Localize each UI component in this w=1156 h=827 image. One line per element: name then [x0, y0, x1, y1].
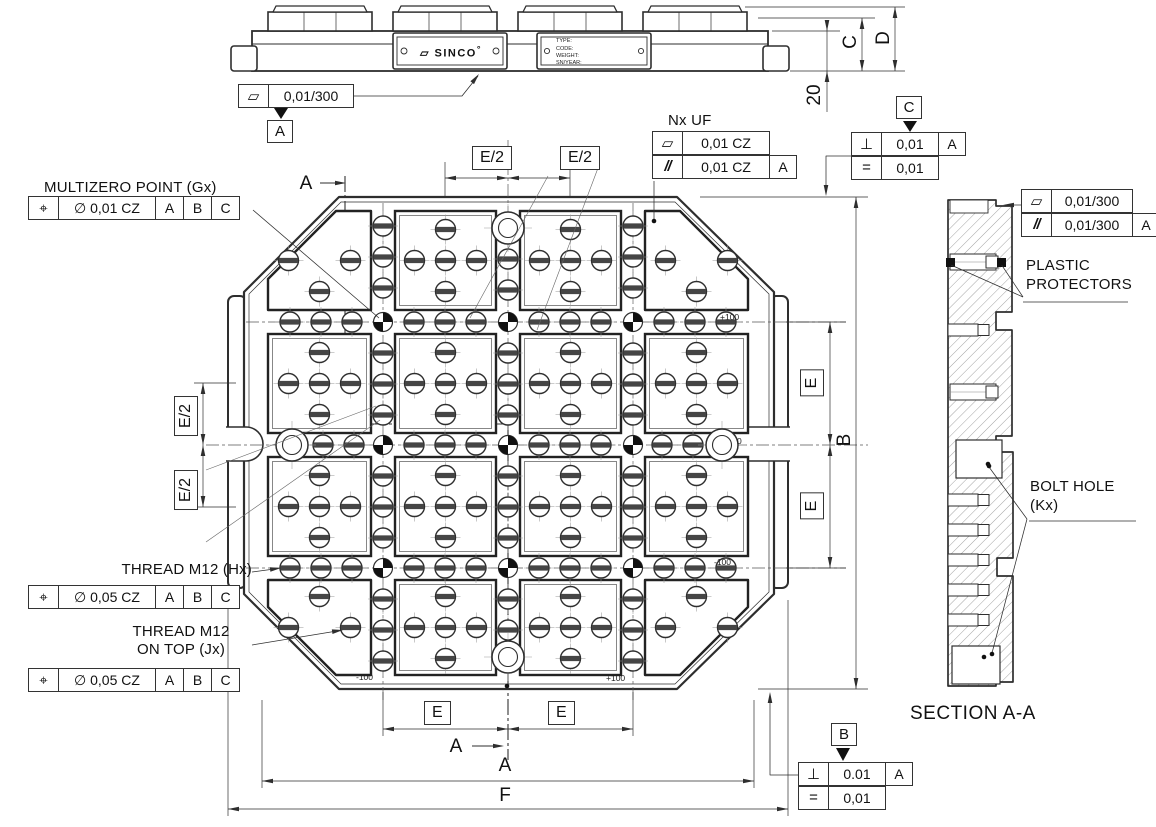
- datum-ref-a: A: [156, 196, 184, 220]
- dim-arrow: [743, 779, 754, 784]
- tolerance-value: 0,01 CZ: [683, 155, 770, 179]
- nameplate-snyear: SN/YEAR:: [556, 60, 582, 67]
- brand-logo: ▱ SINCO°: [399, 44, 503, 60]
- hole-slot: [561, 227, 580, 232]
- symmetry-symbol: =: [798, 786, 829, 810]
- hole-slot: [436, 565, 455, 570]
- hole-slot: [530, 381, 549, 386]
- hole-slot: [687, 381, 706, 386]
- hole-slot: [436, 227, 455, 232]
- hole-slot: [687, 350, 706, 355]
- datum-a-flag: A: [267, 120, 293, 143]
- datum-ref-a: A: [156, 585, 184, 609]
- fcf-thread-hx: ⌖ ∅ 0,05 CZ A B C: [28, 585, 240, 609]
- hole-slot: [561, 319, 580, 324]
- hole-slot: [624, 658, 643, 663]
- hole-slot: [279, 625, 298, 630]
- hole-slot: [310, 535, 329, 540]
- hole-slot: [499, 381, 518, 386]
- section-mark-a-bottom: A: [450, 736, 463, 758]
- hole-slot: [436, 473, 455, 478]
- hole-slot: [624, 535, 643, 540]
- dim-arrow: [201, 434, 206, 445]
- dim-arrow: [893, 7, 898, 18]
- leader-arrow: [768, 692, 773, 703]
- dim-arrow: [825, 20, 830, 31]
- tolerance-value: 0,01/300: [1052, 213, 1133, 237]
- dim-arrow: [854, 678, 859, 689]
- reference-bush-bore: [713, 436, 732, 455]
- dim-arrow: [825, 71, 830, 82]
- dim-arrow: [228, 807, 239, 812]
- hole-slot: [405, 319, 424, 324]
- datum-ref-c: C: [212, 668, 240, 692]
- dim-arrow: [201, 496, 206, 507]
- leader-datum-c: [826, 156, 852, 193]
- hole-slot: [436, 504, 455, 509]
- hole-slot: [341, 504, 360, 509]
- circle: [982, 655, 987, 660]
- hole-slot: [624, 596, 643, 601]
- hole-slot: [374, 350, 393, 355]
- nx-uf-label: Nx UF: [668, 112, 712, 129]
- notch-left: [226, 427, 263, 461]
- hole-slot: [467, 319, 486, 324]
- hole-slot: [310, 350, 329, 355]
- hole-slot: [499, 412, 518, 417]
- hole-slot: [343, 565, 362, 570]
- hole-slot: [655, 565, 674, 570]
- dim-arrow: [828, 434, 833, 445]
- hole-slot: [499, 473, 518, 478]
- hole-slot: [405, 565, 424, 570]
- section-mark-a-top: A: [300, 173, 313, 195]
- section-bush-block: [952, 646, 1000, 684]
- hole-slot: [687, 289, 706, 294]
- dim-e-bottom-left: E: [424, 701, 451, 725]
- hole-slot: [436, 412, 455, 417]
- elevation-pad-top-strip: [648, 6, 742, 12]
- datum-ref-c: C: [212, 196, 240, 220]
- hole-slot: [624, 254, 643, 259]
- dim-arrow: [893, 60, 898, 71]
- hole-slot: [310, 473, 329, 478]
- perpendicularity-symbol: ⊥: [798, 762, 829, 786]
- hole-slot: [530, 258, 549, 263]
- hole-slot: [436, 594, 455, 599]
- hole-slot: [436, 258, 455, 263]
- leader-arrow: [824, 185, 829, 196]
- circle: [987, 464, 992, 469]
- hole-slot: [279, 504, 298, 509]
- tolerance-value: 0,01/300: [1052, 189, 1133, 213]
- nameplate-code: CODE:: [556, 46, 573, 53]
- thread-m12-jx-label-line1: THREAD M12: [110, 623, 252, 640]
- dim-arrow: [201, 445, 206, 456]
- hole-slot: [592, 504, 611, 509]
- hole-slot: [436, 656, 455, 661]
- hole-slot: [592, 625, 611, 630]
- fcf-thread-jx: ⌖ ∅ 0,05 CZ A B C: [28, 668, 240, 692]
- hole-slot: [624, 285, 643, 290]
- fcf-elevation-flatness: ▱ 0,01/300: [238, 84, 354, 108]
- hole-slot: [561, 350, 580, 355]
- hole-slot: [374, 504, 393, 509]
- elevation-body: [252, 31, 768, 71]
- hole-slot: [656, 504, 675, 509]
- hole-slot: [374, 473, 393, 478]
- circle: [652, 219, 657, 224]
- fcf-nxuf-parallelism: // 0,01 CZ A: [652, 155, 797, 179]
- hole-slot: [653, 442, 672, 447]
- hole-slot: [405, 504, 424, 509]
- fcf-c-perpendicularity: ⊥ 0,01 A: [851, 132, 966, 156]
- hole-slot: [374, 412, 393, 417]
- dim-arrow: [508, 727, 519, 732]
- hole-slot: [530, 319, 549, 324]
- hole-slot: [374, 535, 393, 540]
- hole-slot: [314, 442, 333, 447]
- hole-slot: [374, 254, 393, 259]
- hole-slot: [499, 504, 518, 509]
- hole-slot: [624, 412, 643, 417]
- dim-b: B: [834, 434, 856, 447]
- hole-slot: [436, 381, 455, 386]
- tolerance-value: ∅ 0,01 CZ: [59, 196, 156, 220]
- bolt-hole: [948, 524, 978, 536]
- bolt-head: [978, 615, 989, 626]
- hole-slot: [686, 565, 705, 570]
- hole-slot: [499, 535, 518, 540]
- bolt-head: [986, 256, 998, 268]
- logo-text: SINCO: [435, 48, 477, 60]
- hole-slot: [561, 412, 580, 417]
- datum-ref-a: A: [770, 155, 797, 179]
- hole-slot: [310, 504, 329, 509]
- fcf-b-perpendicularity: ⊥ 0.01 A: [798, 762, 913, 786]
- datum-c-triangle: [903, 121, 917, 132]
- dim-arrow: [508, 176, 519, 181]
- dim-f: F: [499, 785, 511, 807]
- dim-c: C: [840, 35, 862, 49]
- datum-ref-b: B: [184, 668, 212, 692]
- section-bush-block: [956, 440, 1002, 478]
- hole-slot: [374, 658, 393, 663]
- hole-slot: [499, 627, 518, 632]
- hole-slot: [687, 594, 706, 599]
- elevation-pad: [268, 12, 372, 31]
- hole-slot: [467, 625, 486, 630]
- tolerance-value: ∅ 0,05 CZ: [59, 585, 156, 609]
- hole-slot: [624, 504, 643, 509]
- elevation-pad: [393, 12, 497, 31]
- hole-slot: [310, 412, 329, 417]
- dim-e2-left-upper: E/2: [174, 396, 198, 436]
- hole-slot: [467, 381, 486, 386]
- leader-arrow: [470, 74, 479, 84]
- hole-slot: [499, 350, 518, 355]
- tolerance-value: 0.01: [829, 762, 886, 786]
- bolt-head: [978, 555, 989, 566]
- hole-slot: [592, 442, 611, 447]
- hole-slot: [530, 565, 549, 570]
- section-arrow: [493, 744, 504, 749]
- position-symbol: ⌖: [28, 196, 59, 220]
- hole-slot: [499, 596, 518, 601]
- position-symbol: ⌖: [28, 668, 59, 692]
- perpendicularity-symbol: ⊥: [851, 132, 882, 156]
- dim-arrow: [828, 322, 833, 333]
- dim-arrow: [262, 779, 273, 784]
- dim-arrow: [828, 557, 833, 568]
- hole-slot: [405, 258, 424, 263]
- dim-e2-top-right: E/2: [560, 146, 600, 170]
- hole-slot: [656, 625, 675, 630]
- bolt-hole: [948, 614, 978, 626]
- elevation-pad-top-strip: [398, 6, 492, 12]
- hole-slot: [436, 535, 455, 540]
- circle: [948, 261, 953, 266]
- hole-slot: [310, 381, 329, 386]
- thread-m12-hx-label: THREAD M12 (Hx): [70, 561, 252, 578]
- hole-slot: [624, 473, 643, 478]
- flatness-symbol: ▱: [1021, 189, 1052, 213]
- datum-ref-a: A: [886, 762, 913, 786]
- hole-slot: [436, 350, 455, 355]
- hole-slot: [624, 223, 643, 228]
- name-plate-screw: [638, 48, 643, 53]
- circle: [505, 684, 510, 689]
- hole-slot: [530, 504, 549, 509]
- hole-slot: [405, 625, 424, 630]
- dim-arrow: [497, 727, 508, 732]
- hole-slot: [310, 594, 329, 599]
- hole-slot: [624, 350, 643, 355]
- datum-ref-b: B: [184, 585, 212, 609]
- tolerance-value: 0,01: [882, 156, 939, 180]
- hole-slot: [687, 412, 706, 417]
- symmetry-symbol: =: [851, 156, 882, 180]
- hole-slot: [530, 625, 549, 630]
- hole-slot: [374, 223, 393, 228]
- nameplate-type: TYPE:: [556, 38, 572, 45]
- hole-slot: [310, 289, 329, 294]
- hole-slot: [592, 381, 611, 386]
- bolt-head: [986, 386, 998, 398]
- hole-slot: [436, 289, 455, 294]
- hole-slot: [561, 381, 580, 386]
- tolerance-value: 0,01: [882, 132, 939, 156]
- datum-ref-a: A: [1133, 213, 1156, 237]
- dim-arrow: [497, 176, 508, 181]
- hole-slot: [718, 504, 737, 509]
- hole-slot: [374, 381, 393, 386]
- hole-slot: [561, 473, 580, 478]
- flatness-symbol: ▱: [652, 131, 683, 155]
- elevation-pad: [643, 12, 747, 31]
- hole-slot: [624, 381, 643, 386]
- elevation-protector-cap-right: [763, 46, 789, 71]
- datum-b-triangle: [836, 748, 850, 761]
- reference-bush-bore: [499, 648, 518, 667]
- hole-slot: [592, 565, 611, 570]
- hole-slot: [687, 535, 706, 540]
- datum-b-flag: B: [831, 723, 857, 746]
- multizero-point-label: MULTIZERO POINT (Gx): [44, 179, 217, 196]
- logo-parallelogram-icon: ▱: [420, 48, 430, 60]
- hole-slot: [281, 565, 300, 570]
- hole-slot: [687, 504, 706, 509]
- tolerance-value: 0,01: [829, 786, 886, 810]
- hole-slot: [467, 504, 486, 509]
- hole-slot: [561, 656, 580, 661]
- logo-registered-mark: °: [477, 44, 482, 54]
- fcf-b-symmetry: = 0,01: [798, 786, 886, 810]
- dim-e2-left-lower: E/2: [174, 470, 198, 510]
- coord-zero-right: 0: [737, 436, 742, 446]
- hole-slot: [561, 504, 580, 509]
- hole-slot: [561, 625, 580, 630]
- parallelism-symbol: //: [1021, 213, 1052, 237]
- dim-d: D: [873, 31, 895, 45]
- elevation-protector-cap-left: [231, 46, 257, 71]
- flatness-symbol: ▱: [238, 84, 269, 108]
- coord-plus100-right: +100: [720, 312, 739, 322]
- fcf-multizero: ⌖ ∅ 0,01 CZ A B C: [28, 196, 240, 220]
- dim-20: 20: [804, 84, 826, 105]
- fcf-c-symmetry: = 0,01: [851, 156, 939, 180]
- coord-minus100-right: -100: [714, 557, 731, 567]
- dim-arrow: [854, 197, 859, 208]
- section-arrow: [335, 181, 346, 186]
- parallelism-symbol: //: [652, 155, 683, 179]
- dim-arrow: [828, 445, 833, 456]
- technical-drawing-page: MULTIZERO POINT (Gx) ⌖ ∅ 0,01 CZ A B C T…: [0, 0, 1156, 827]
- bolt-hole: [948, 494, 978, 506]
- bolt-hole-label-line2: (Kx): [1030, 497, 1058, 514]
- dim-e-right-upper: E: [800, 370, 824, 397]
- dim-e2-top-left: E/2: [472, 146, 512, 170]
- hole-slot: [341, 625, 360, 630]
- fcf-section-parallelism: // 0,01/300 A: [1021, 213, 1156, 237]
- dim-arrow: [445, 176, 456, 181]
- hole-slot: [312, 319, 331, 324]
- tolerance-value: 0,01 CZ: [683, 131, 770, 155]
- hole-slot: [592, 258, 611, 263]
- fcf-nxuf-flatness: ▱ 0,01 CZ: [652, 131, 770, 155]
- fcf-section-flatness: ▱ 0,01/300: [1021, 189, 1133, 213]
- section-top-detail: [950, 200, 988, 213]
- datum-ref-a: A: [939, 132, 966, 156]
- leader-datum-b: [770, 695, 798, 775]
- dim-arrow: [201, 383, 206, 394]
- coord-plus100-bottom: +100: [606, 673, 625, 683]
- hole-slot: [312, 565, 331, 570]
- hole-slot: [561, 594, 580, 599]
- hole-slot: [655, 319, 674, 324]
- dim-arrow: [559, 176, 570, 181]
- coord-minus100-bottom: -100: [356, 672, 373, 682]
- dim-arrow: [383, 727, 394, 732]
- hole-slot: [561, 442, 580, 447]
- hole-slot: [341, 381, 360, 386]
- bolt-hole-label-line1: BOLT HOLE: [1030, 478, 1115, 495]
- hole-slot: [436, 442, 455, 447]
- elevation-pad: [518, 12, 622, 31]
- bolt-hole: [948, 554, 978, 566]
- hole-slot: [436, 625, 455, 630]
- hole-slot: [686, 319, 705, 324]
- hole-slot: [374, 285, 393, 290]
- hole-slot: [374, 627, 393, 632]
- hole-slot: [279, 381, 298, 386]
- datum-ref-b: B: [184, 196, 212, 220]
- hole-slot: [436, 319, 455, 324]
- elevation-pad-top-strip: [273, 6, 367, 12]
- tolerance-value: ∅ 0,05 CZ: [59, 668, 156, 692]
- hole-slot: [624, 627, 643, 632]
- hole-slot: [561, 289, 580, 294]
- circle: [990, 652, 995, 657]
- datum-ref-c: C: [212, 585, 240, 609]
- hole-slot: [499, 287, 518, 292]
- bolt-head: [978, 525, 989, 536]
- name-plate-screw: [544, 48, 549, 53]
- circle: [999, 261, 1004, 266]
- hole-slot: [561, 565, 580, 570]
- hole-slot: [592, 319, 611, 324]
- hole-slot: [718, 381, 737, 386]
- plastic-protectors-label-line1: PLASTIC: [1026, 257, 1090, 274]
- bolt-head: [978, 495, 989, 506]
- dim-arrow: [860, 60, 865, 71]
- bolt-hole: [948, 584, 978, 596]
- hole-slot: [467, 258, 486, 263]
- dim-e-right-lower: E: [800, 493, 824, 520]
- hole-slot: [656, 258, 675, 263]
- hole-slot: [656, 381, 675, 386]
- dim-a: A: [499, 755, 512, 777]
- nameplate-weight: WEIGHT:: [556, 53, 579, 60]
- hole-slot: [405, 442, 424, 447]
- dim-e-bottom-right: E: [548, 701, 575, 725]
- dim-arrow: [622, 727, 633, 732]
- dim-arrow: [860, 18, 865, 29]
- reference-bush-bore: [283, 436, 302, 455]
- datum-c-flag: C: [896, 96, 922, 119]
- hole-slot: [687, 473, 706, 478]
- datum-ref-a: A: [156, 668, 184, 692]
- section-title: SECTION A-A: [910, 703, 1036, 725]
- hole-slot: [561, 535, 580, 540]
- hole-slot: [718, 258, 737, 263]
- reference-bush-bore: [499, 219, 518, 238]
- elevation-pad-top-strip: [523, 6, 617, 12]
- dim-arrow: [777, 807, 788, 812]
- hole-slot: [530, 442, 549, 447]
- hole-slot: [374, 596, 393, 601]
- hole-slot: [279, 258, 298, 263]
- position-symbol: ⌖: [28, 585, 59, 609]
- hole-slot: [281, 319, 300, 324]
- hole-slot: [467, 565, 486, 570]
- bolt-head: [978, 325, 989, 336]
- hole-slot: [343, 319, 362, 324]
- bolt-head: [978, 585, 989, 596]
- hole-slot: [405, 381, 424, 386]
- bolt-hole: [948, 324, 978, 336]
- hole-slot: [341, 258, 360, 263]
